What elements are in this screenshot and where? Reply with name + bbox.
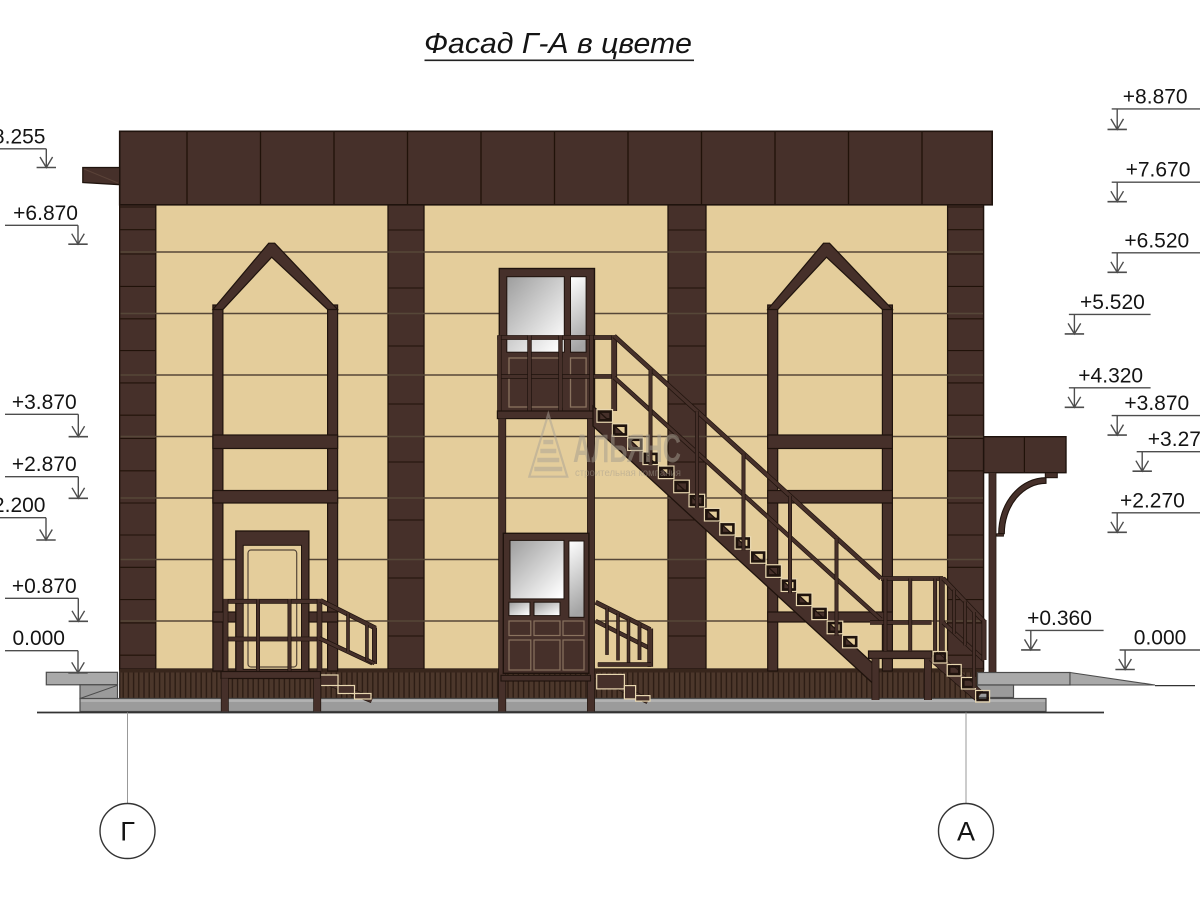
svg-text:+5.520: +5.520 — [1080, 291, 1145, 314]
svg-text:+6.520: +6.520 — [1124, 229, 1189, 252]
svg-text:+8.870: +8.870 — [1123, 85, 1188, 108]
svg-text:+2.270: +2.270 — [1120, 489, 1185, 512]
svg-text:+8.255: +8.255 — [0, 125, 46, 148]
svg-text:+3.870: +3.870 — [1124, 392, 1189, 415]
svg-text:+7.670: +7.670 — [1126, 159, 1191, 182]
svg-text:+6.870: +6.870 — [13, 202, 78, 225]
svg-text:+2.870: +2.870 — [12, 453, 77, 476]
svg-text:+3.870: +3.870 — [12, 391, 77, 414]
svg-text:+2.200: +2.200 — [0, 494, 46, 517]
svg-text:строительная компания: строительная компания — [575, 467, 681, 479]
svg-text:А: А — [957, 817, 975, 847]
svg-text:+0.360: +0.360 — [1027, 607, 1092, 630]
svg-text:+0.870: +0.870 — [12, 575, 77, 598]
svg-text:+4.320: +4.320 — [1078, 364, 1143, 387]
svg-text:0.000: 0.000 — [1134, 627, 1187, 650]
svg-text:АЛЬЯНС: АЛЬЯНС — [573, 427, 681, 471]
svg-text:Г: Г — [120, 817, 135, 847]
svg-text:+3.270: +3.270 — [1148, 428, 1200, 451]
svg-text:0.000: 0.000 — [12, 627, 65, 650]
svg-text:Фасад Г-А в цвете: Фасад Г-А в цвете — [424, 28, 692, 60]
